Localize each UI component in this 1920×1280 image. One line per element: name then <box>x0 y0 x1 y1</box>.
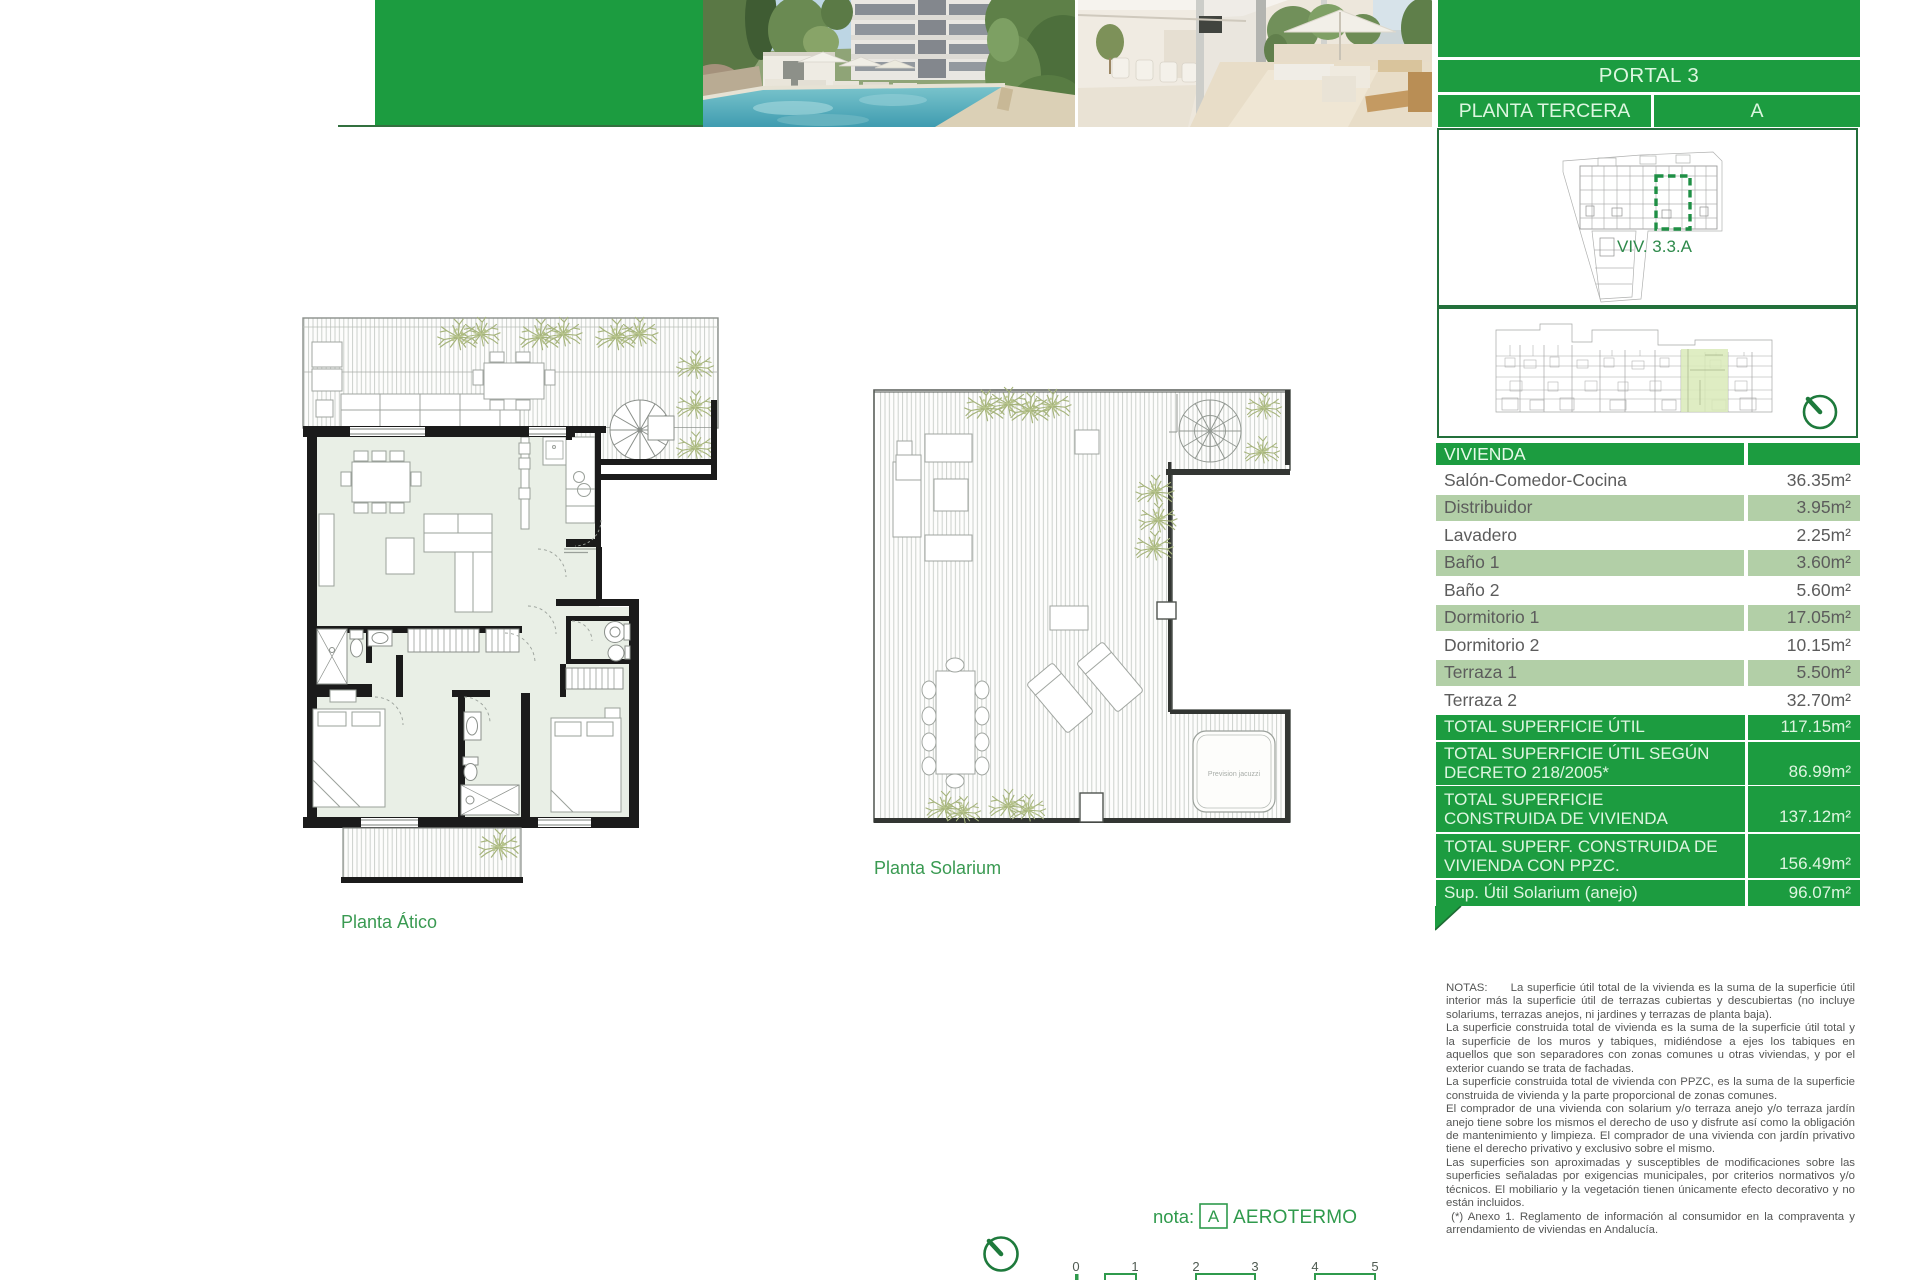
svg-text:5: 5 <box>1371 1259 1378 1274</box>
svg-text:3: 3 <box>1251 1259 1258 1274</box>
svg-text:Planta Solarium: Planta Solarium <box>874 858 1001 878</box>
svg-text:A: A <box>1208 1207 1220 1226</box>
svg-text:Planta Ático: Planta Ático <box>341 912 437 932</box>
svg-text:1: 1 <box>1131 1259 1138 1274</box>
svg-text:Prevision jacuzzi: Prevision jacuzzi <box>1208 771 1261 778</box>
svg-text:0: 0 <box>1072 1259 1079 1274</box>
svg-text:2: 2 <box>1192 1259 1199 1274</box>
svg-text:4: 4 <box>1311 1259 1318 1274</box>
svg-text:AEROTERMO: AEROTERMO <box>1233 1207 1357 1228</box>
svg-text:nota:: nota: <box>1153 1206 1194 1227</box>
